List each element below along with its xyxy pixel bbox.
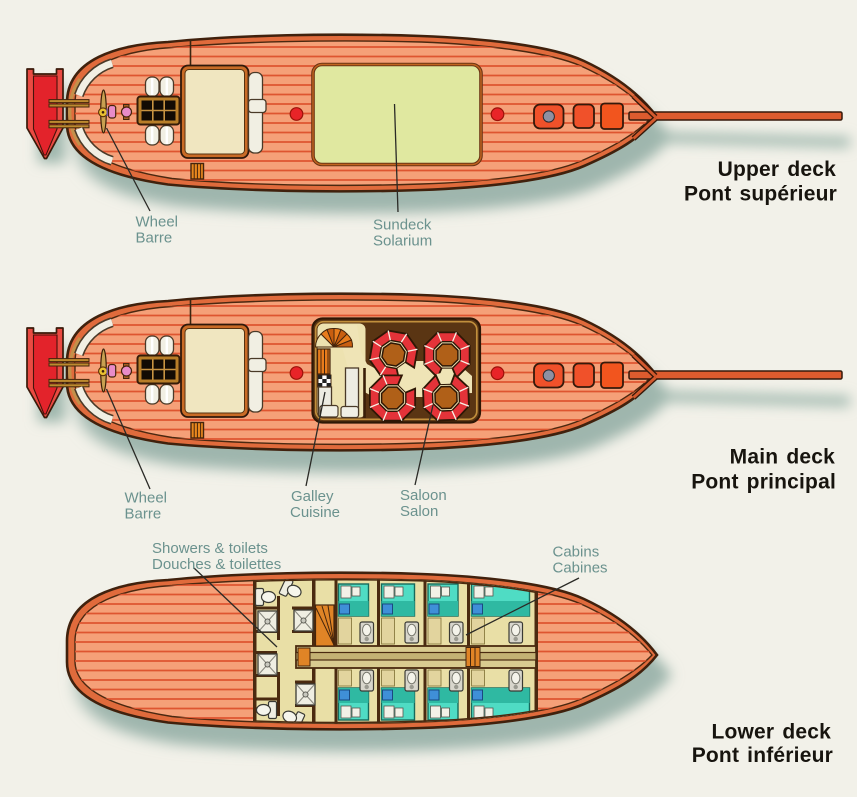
- svg-text:Barre: Barre: [136, 230, 173, 247]
- svg-text:Cabines: Cabines: [553, 560, 608, 577]
- svg-text:Main deck: Main deck: [730, 446, 835, 469]
- svg-text:Pont inférieur: Pont inférieur: [692, 744, 833, 767]
- svg-text:Galley: Galley: [291, 488, 334, 505]
- svg-text:Sundeck: Sundeck: [373, 217, 432, 234]
- svg-text:Cabins: Cabins: [553, 544, 600, 561]
- svg-text:Solarium: Solarium: [373, 233, 432, 250]
- svg-text:Pont supérieur: Pont supérieur: [684, 183, 837, 206]
- svg-text:Saloon: Saloon: [400, 487, 447, 504]
- svg-text:Douches & toilettes: Douches & toilettes: [152, 556, 281, 573]
- svg-text:Pont principal: Pont principal: [691, 471, 836, 494]
- svg-text:Upper deck: Upper deck: [718, 158, 836, 181]
- svg-text:Salon: Salon: [400, 503, 438, 520]
- svg-text:Wheel: Wheel: [136, 214, 179, 231]
- svg-text:Barre: Barre: [125, 506, 162, 523]
- svg-text:Wheel: Wheel: [125, 490, 168, 507]
- svg-text:Showers & toilets: Showers & toilets: [152, 540, 268, 557]
- svg-text:Lower deck: Lower deck: [711, 721, 831, 744]
- svg-text:Cuisine: Cuisine: [290, 504, 340, 521]
